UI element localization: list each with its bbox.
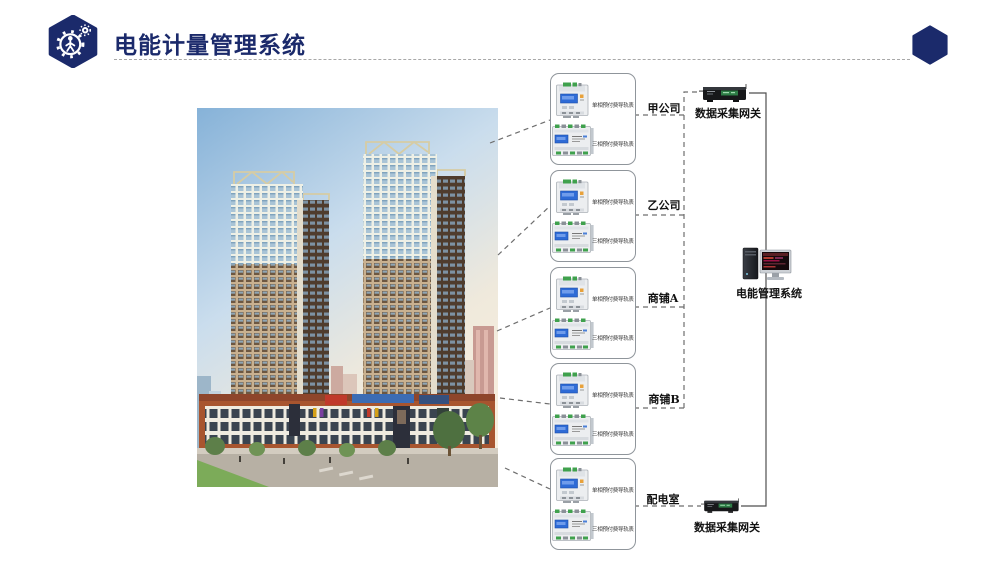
- single-phase-meter-icon: [556, 82, 589, 119]
- building-photo: [197, 108, 498, 487]
- meter-group-box: 单相预付费导轨表 三相预付费导轨表: [550, 73, 636, 165]
- meter-label: 单相预付费导轨表: [592, 391, 634, 399]
- group-label-company-b: 乙公司: [646, 197, 682, 213]
- three-phase-meter-icon: [552, 318, 594, 352]
- meter-group-box: 单相预付费导轨表 三相预付费导轨表: [550, 267, 636, 359]
- meter-label: 三相预付费导轨表: [592, 430, 634, 438]
- page-title: 电能计量管理系统: [114, 26, 306, 60]
- diagram-wires: [0, 0, 1000, 563]
- meter-label: 单相预付费导轨表: [592, 101, 634, 109]
- group-label-distribution-room: 配电室: [645, 491, 681, 507]
- meter-group-box: 单相预付费导轨表 三相预付费导轨表: [550, 458, 636, 550]
- meter-label: 单相预付费导轨表: [592, 295, 634, 303]
- three-phase-meter-icon: [552, 124, 594, 158]
- server-label: 电能管理系统: [735, 285, 803, 301]
- meter-group-box: 单相预付费导轨表 三相预付费导轨表: [550, 170, 636, 262]
- three-phase-meter-icon: [552, 414, 594, 448]
- meter-label: 三相预付费导轨表: [592, 525, 634, 533]
- gateway-bottom-label: 数据采集网关: [687, 519, 767, 535]
- single-phase-meter-icon: [556, 179, 589, 216]
- gateway-top-label: 数据采集网关: [688, 105, 768, 121]
- group-label-company-a: 甲公司: [646, 100, 682, 116]
- three-phase-meter-icon: [552, 509, 594, 543]
- slide: 电能计量管理系统: [0, 0, 1000, 563]
- single-phase-meter-icon: [556, 276, 589, 313]
- meter-label: 单相预付费导轨表: [592, 486, 634, 494]
- title-underline: [114, 59, 910, 60]
- meter-label: 三相预付费导轨表: [592, 140, 634, 148]
- meter-label: 三相预付费导轨表: [592, 334, 634, 342]
- group-label-shop-a: 商铺A: [645, 290, 681, 306]
- single-phase-meter-icon: [556, 372, 589, 409]
- single-phase-meter-icon: [556, 467, 589, 504]
- decor-hexagon-icon: [908, 25, 952, 65]
- meter-label: 单相预付费导轨表: [592, 198, 634, 206]
- meter-group-box: 单相预付费导轨表 三相预付费导轨表: [550, 363, 636, 455]
- data-gateway-icon: [699, 84, 749, 103]
- computer-icon: [740, 245, 794, 285]
- three-phase-meter-icon: [552, 221, 594, 255]
- group-label-shop-b: 商铺B: [646, 391, 682, 407]
- logo-gear-person-icon: [46, 15, 100, 68]
- meter-label: 三相预付费导轨表: [592, 237, 634, 245]
- data-gateway-icon: [701, 498, 741, 514]
